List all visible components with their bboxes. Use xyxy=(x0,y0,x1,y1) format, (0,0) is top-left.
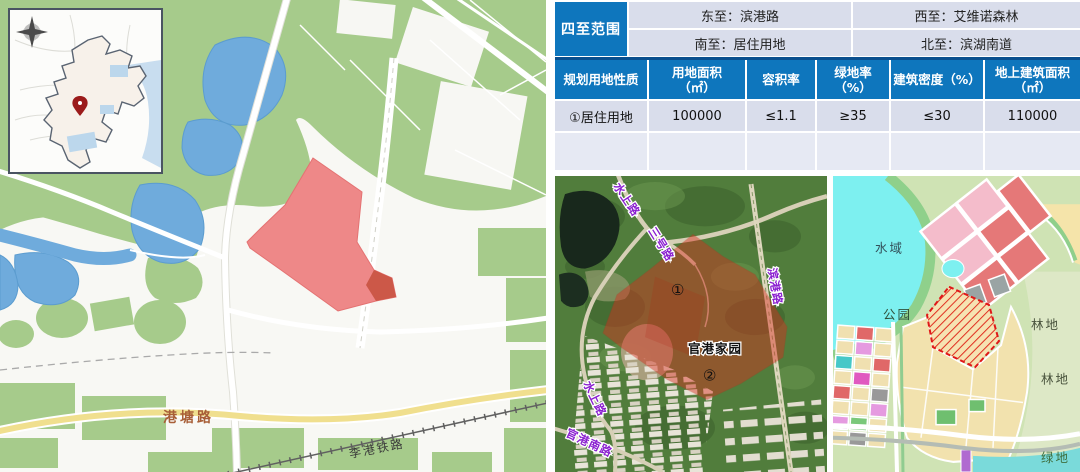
city-inset-map xyxy=(8,8,163,174)
empty-cell xyxy=(747,133,815,170)
road-label-gangtang: 港塘路 xyxy=(163,409,214,426)
col-header-gfa: 地上建筑面积 （㎡） xyxy=(985,60,1080,99)
site-location-map: 港塘路 李港铁路 xyxy=(0,0,546,472)
empty-cell xyxy=(985,133,1080,170)
label-water: 水域 xyxy=(875,240,904,255)
location-pin-dot xyxy=(78,101,82,105)
planning-table: 规划用地性质 用地面积 （㎡） 容积率 绿地率 （%） 建筑密度（%） 地上建筑… xyxy=(555,57,1080,170)
planning-document-page: 港塘路 李港铁路 xyxy=(0,0,1080,472)
cell-density: ≤30 xyxy=(891,101,983,131)
label-green: 绿地 xyxy=(1041,450,1070,465)
green-parcel xyxy=(969,400,985,412)
cell-land-area: 100000 xyxy=(649,101,745,131)
col-header-density: 建筑密度（%） xyxy=(891,60,983,99)
boundary-table-title: 四至范围 xyxy=(555,2,627,56)
satellite-map: 水上路 三号路 滨港路 水上路 官港南路 官港家园 ① ② xyxy=(555,176,827,472)
empty-cell xyxy=(891,133,983,170)
satellite-canvas: 水上路 三号路 滨港路 水上路 官港南路 官港家园 ① ② xyxy=(555,176,827,472)
cell-land-use: ①居住用地 xyxy=(555,101,647,131)
green-median xyxy=(901,327,903,472)
label-park: 公园 xyxy=(883,307,912,322)
col-header-far: 容积率 xyxy=(747,60,815,99)
col-header-land-area: 用地面积 （㎡） xyxy=(649,60,745,99)
label-guangang-estate: 官港家园 xyxy=(688,341,742,356)
marker-1: ① xyxy=(671,281,684,299)
land-use-plan-map: 水域 公园 林地 林地 绿地 xyxy=(833,176,1080,472)
info-panel: 四至范围 东至：滨港路 西至：艾维诺森林 南至：居住用地 北至：滨湖南道 规划用… xyxy=(555,0,1080,472)
boundary-west: 西至：艾维诺森林 xyxy=(853,2,1080,28)
boundary-north: 北至：滨湖南道 xyxy=(853,30,1080,56)
housing-estate-2 xyxy=(723,400,825,472)
purple-parcel xyxy=(961,450,971,472)
cell-far: ≤1.1 xyxy=(747,101,815,131)
boundary-table: 四至范围 东至：滨港路 西至：艾维诺森林 南至：居住用地 北至：滨湖南道 xyxy=(555,2,1080,56)
label-forest-mid: 林地 xyxy=(1041,371,1070,386)
empty-cell xyxy=(649,133,745,170)
inset-canvas xyxy=(10,10,161,172)
green-parcel xyxy=(936,410,956,425)
plan-canvas: 水域 公园 林地 林地 绿地 xyxy=(833,176,1080,472)
pond xyxy=(942,260,964,278)
boundary-east: 东至：滨港路 xyxy=(629,2,851,28)
label-forest-top: 林地 xyxy=(1031,317,1060,332)
boundary-south: 南至：居住用地 xyxy=(629,30,851,56)
empty-cell xyxy=(817,133,889,170)
cell-gfa: 110000 xyxy=(985,101,1080,131)
empty-cell xyxy=(555,133,647,170)
marker-2: ② xyxy=(703,366,716,384)
cell-green-rate: ≥35 xyxy=(817,101,889,131)
col-header-green-rate: 绿地率 （%） xyxy=(817,60,889,99)
col-header-land-use: 规划用地性质 xyxy=(555,60,647,99)
